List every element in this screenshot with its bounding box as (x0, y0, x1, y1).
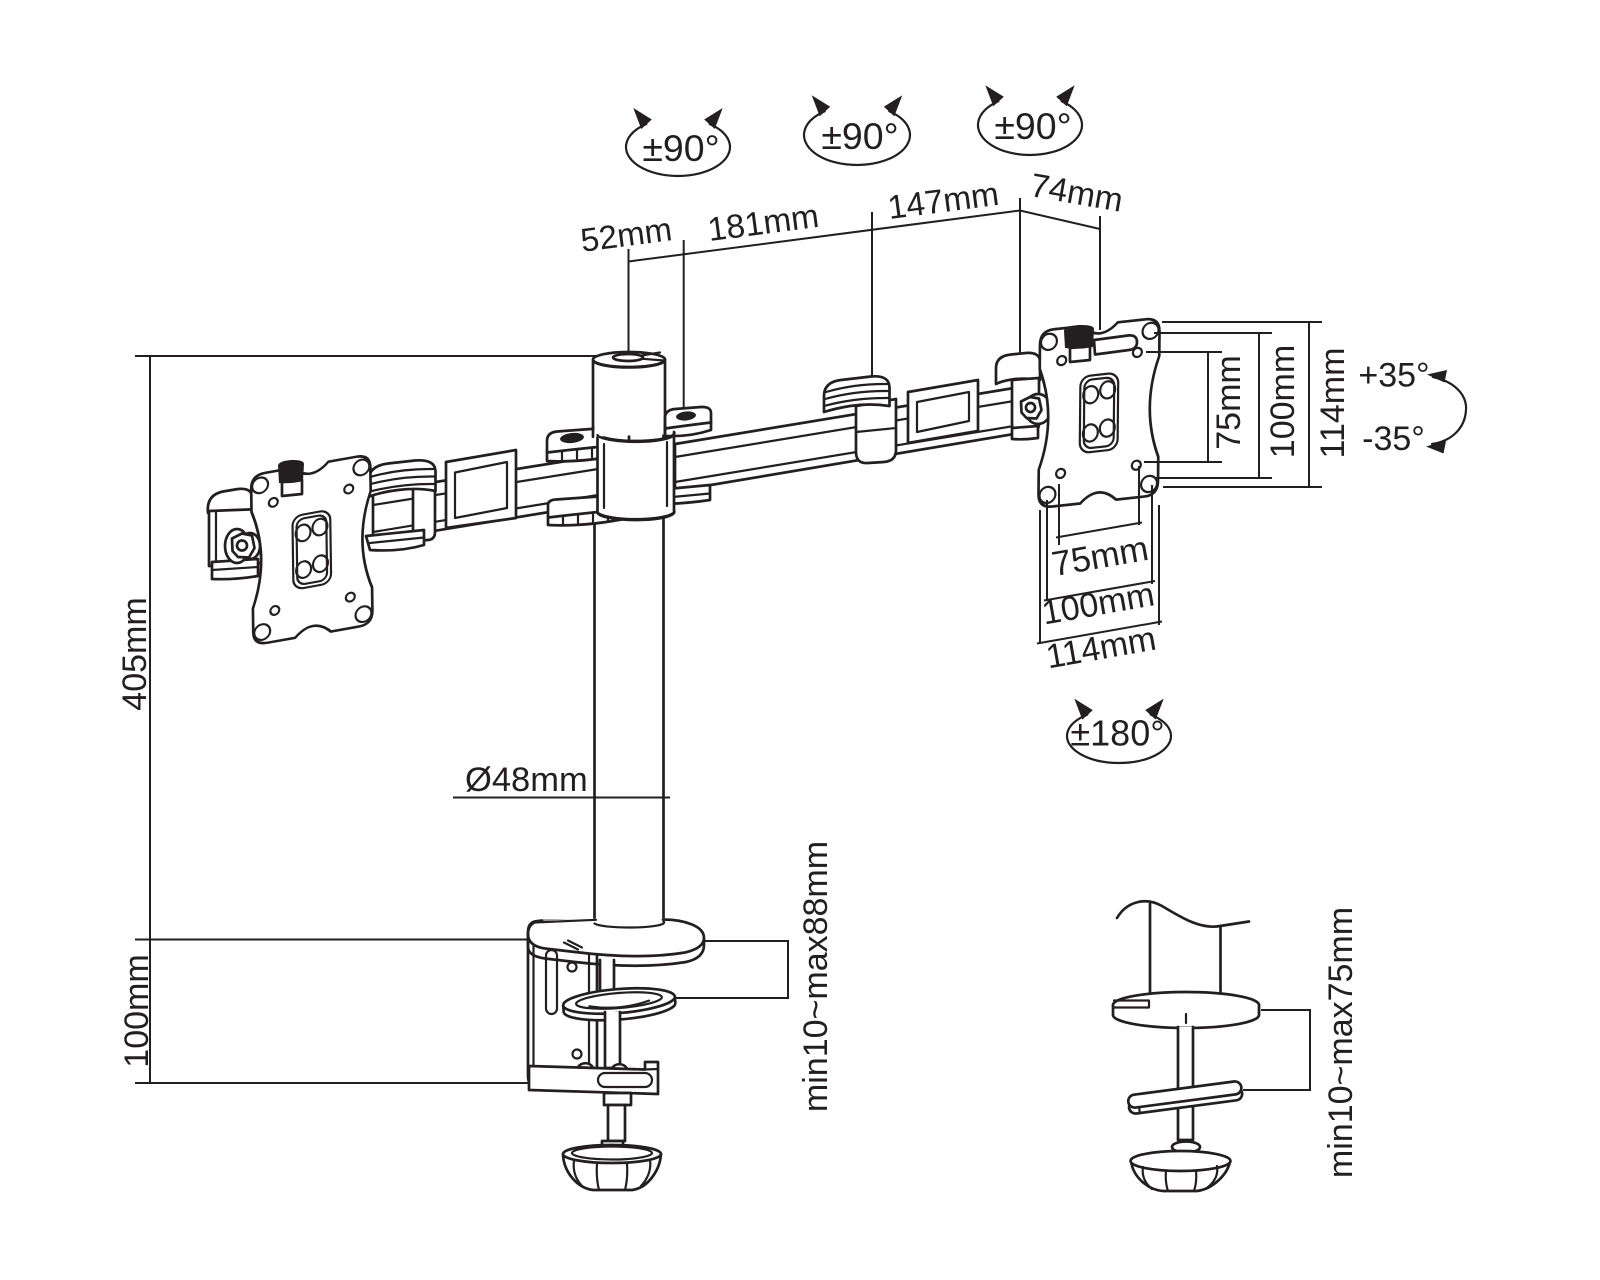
svg-text:±90°: ±90° (642, 127, 719, 169)
svg-text:75mm: 75mm (1210, 355, 1248, 449)
svg-text:±90°: ±90° (994, 105, 1071, 147)
svg-text:±180°: ±180° (1070, 713, 1164, 754)
svg-text:74mm: 74mm (1028, 167, 1126, 220)
svg-text:min10~max75mm: min10~max75mm (1322, 907, 1360, 1178)
svg-text:+35°: +35° (1358, 357, 1429, 395)
svg-text:±90°: ±90° (821, 115, 898, 157)
svg-text:52mm: 52mm (578, 210, 674, 259)
svg-text:100mm: 100mm (118, 954, 156, 1067)
svg-text:147mm: 147mm (886, 176, 1002, 227)
svg-text:Ø48mm: Ø48mm (465, 761, 588, 799)
svg-text:114mm: 114mm (1314, 348, 1352, 459)
svg-text:75mm: 75mm (1049, 529, 1152, 584)
svg-text:181mm: 181mm (706, 198, 822, 249)
svg-text:100mm: 100mm (1264, 345, 1302, 458)
svg-text:-35°: -35° (1362, 420, 1425, 458)
svg-text:405mm: 405mm (116, 597, 154, 710)
svg-text:min10~max88mm: min10~max88mm (797, 841, 835, 1112)
